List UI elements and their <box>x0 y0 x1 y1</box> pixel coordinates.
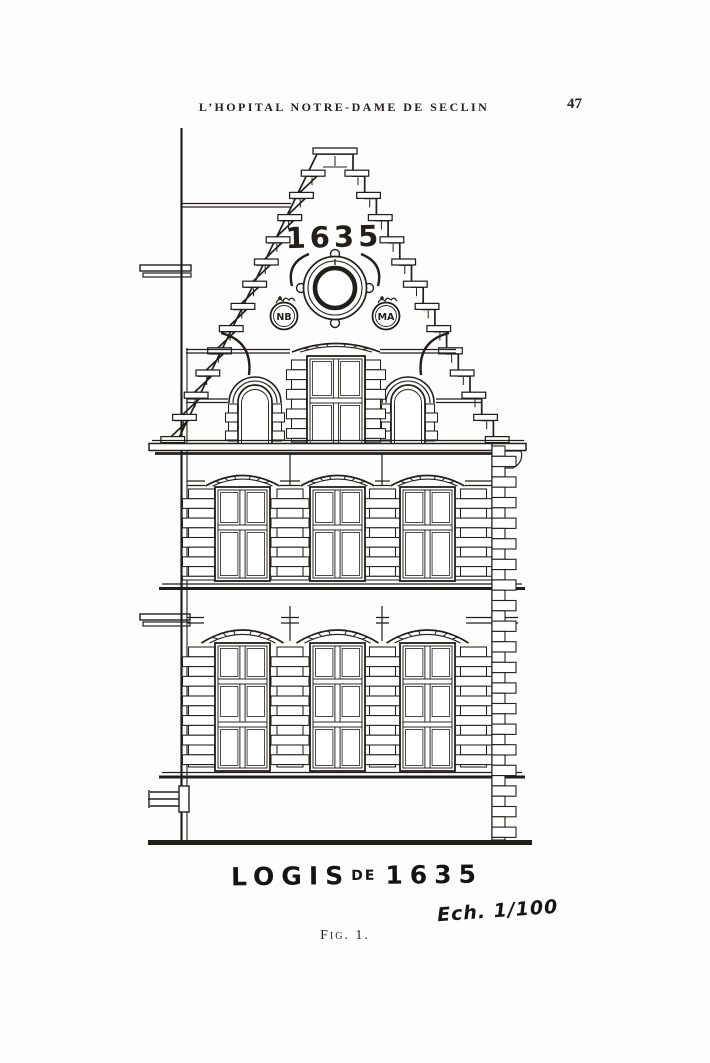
caption-year: 1635 <box>385 860 483 890</box>
svg-text:1635: 1635 <box>285 219 383 256</box>
scanned-page: L’HOPITAL NOTRE-DAME DE SECLIN 47 1635NB… <box>0 0 710 1063</box>
figure-caption-title: LOGISDE1635 <box>231 860 483 892</box>
band-course-lower <box>140 614 518 626</box>
ground-line <box>148 840 532 845</box>
monogram-medallion: NB <box>271 297 298 330</box>
gable-date-inscription: 1635 <box>285 219 383 256</box>
attic-niche <box>379 377 438 443</box>
svg-text:MA: MA <box>378 312 395 323</box>
caption-connector: DE <box>351 868 376 884</box>
figure-label: Fig. 1. <box>320 928 370 944</box>
attic-niche <box>226 377 285 443</box>
second-floor <box>159 453 525 589</box>
monogram-medallion: MA <box>373 297 400 330</box>
oculus-window <box>297 250 374 328</box>
caption-word: LOGIS <box>231 861 350 891</box>
attic-center-window <box>287 344 386 447</box>
ground-floor <box>159 606 525 777</box>
cornice-upper <box>149 441 526 469</box>
svg-text:NB: NB <box>276 312 291 323</box>
facade-elevation-drawing: 1635NBMA <box>0 0 710 1063</box>
